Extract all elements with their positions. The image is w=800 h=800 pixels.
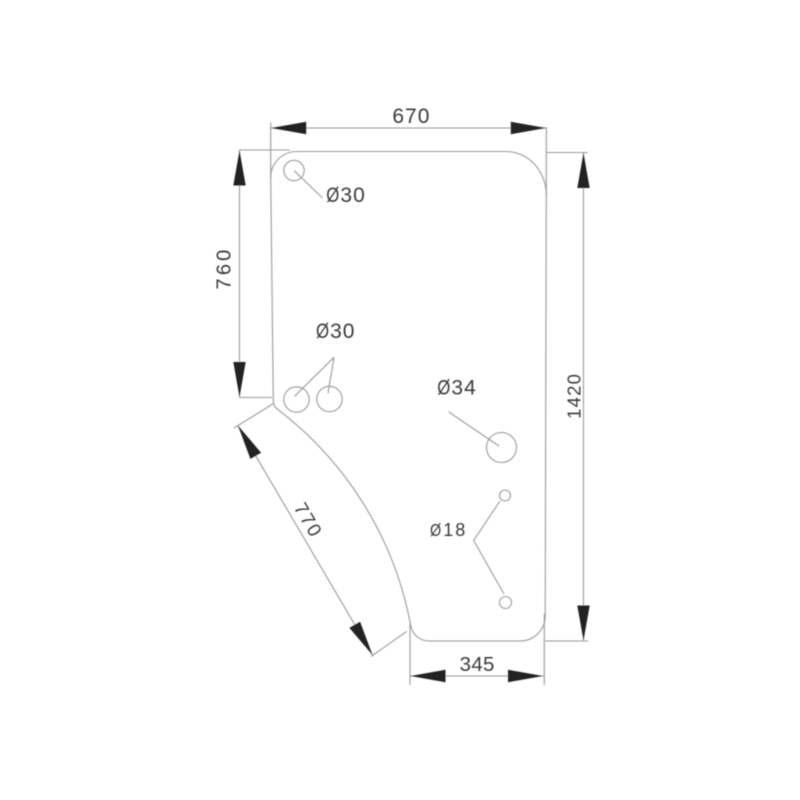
svg-text:18: 18 bbox=[443, 520, 467, 540]
svg-text:670: 670 bbox=[392, 105, 430, 128]
svg-text:Ø: Ø bbox=[437, 377, 450, 400]
svg-text:760: 760 bbox=[214, 247, 236, 290]
svg-text:34: 34 bbox=[451, 377, 476, 400]
svg-text:Ø: Ø bbox=[326, 184, 339, 207]
svg-text:1420: 1420 bbox=[564, 373, 585, 419]
svg-text:Ø: Ø bbox=[316, 320, 329, 343]
svg-text:30: 30 bbox=[330, 320, 355, 343]
svg-text:345: 345 bbox=[460, 653, 495, 676]
svg-text:Ø: Ø bbox=[430, 521, 441, 541]
svg-text:30: 30 bbox=[340, 184, 365, 207]
